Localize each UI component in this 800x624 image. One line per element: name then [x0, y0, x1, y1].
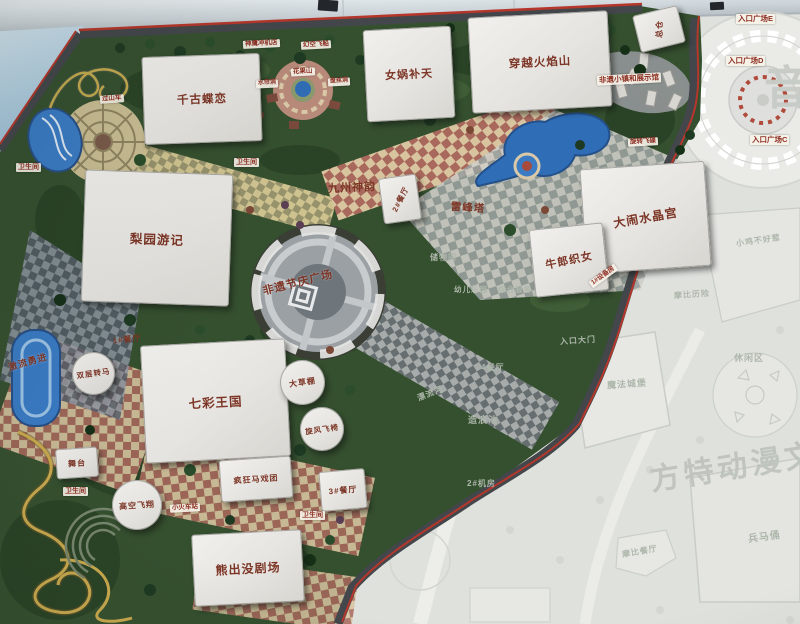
building-label: 七彩王国 — [140, 338, 291, 463]
building-leifengta: 雷峰塔 — [434, 178, 502, 237]
building-label: 雷峰塔 — [434, 178, 502, 237]
label-text: 盘丝洞 — [330, 78, 348, 85]
label-text: 储物间 — [430, 253, 457, 262]
label-text: 休闲区 — [734, 353, 764, 363]
building-qiangu-dielian: 千古蝶恋 — [142, 53, 263, 145]
label-text: 花果山 — [293, 67, 313, 75]
building-label: 旋风飞椅 — [297, 404, 347, 454]
label-text: 入口大门 — [560, 335, 597, 346]
label-canting-4: 4餐厅 — [481, 363, 504, 373]
label-text: 4餐厅 — [481, 363, 504, 372]
label-text: 卫生间 — [65, 488, 86, 495]
building-label: 女娲补天 — [363, 26, 456, 122]
label-zaolangchi: 造浪池 — [468, 415, 498, 427]
label-text: 水帘洞 — [258, 80, 276, 87]
building-label: 3#餐厅 — [318, 468, 367, 512]
label-wc-xiongchumo: 卫生间 — [300, 511, 325, 520]
label-text: 造浪池 — [468, 415, 498, 425]
building-label: 千古蝶恋 — [142, 53, 263, 145]
building-nvwa-butian: 女娲补天 — [363, 26, 456, 122]
label-shuiliandong: 水帘洞 — [256, 79, 278, 88]
label-wc-wutai: 卫生间 — [63, 487, 88, 496]
building-label: 熊出没剧场 — [191, 529, 305, 607]
label-pansidong: 盘丝洞 — [328, 77, 350, 86]
label-text: 2#机房 — [467, 479, 496, 488]
building-qicai-wangguo: 七彩王国 — [140, 338, 291, 463]
label-text: 卫生间 — [236, 159, 257, 166]
label-text: 魔法城堡 — [607, 378, 648, 391]
label-text: 摩比历险 — [674, 289, 711, 300]
building-canting-2: 2#餐厅 — [378, 174, 422, 225]
label-text: 小火车站 — [172, 503, 198, 511]
building-chuanyue-huoyanshan: 穿越火焰山 — [468, 10, 613, 113]
building-label: 双层转马 — [69, 349, 118, 398]
label-text: 幻空飞船 — [303, 40, 329, 48]
label-text: 卫生间 — [18, 164, 39, 171]
ride-shuangceng-zhuanma: 双层转马 — [72, 352, 115, 395]
building-label: 疯狂马戏团 — [219, 456, 294, 503]
label-rukou-guangchang-c: 入口广场C — [750, 135, 789, 145]
building-label: 总仓 — [640, 6, 679, 53]
building-label: 舞台 — [55, 447, 99, 480]
building-liyuan-youji: 梨园游记 — [81, 169, 234, 306]
label-text: 幼儿乐园 — [454, 285, 488, 294]
ride-gaokong-feixiang: 高空飞翔 — [112, 480, 162, 530]
building-label: 高空飞翔 — [110, 478, 163, 531]
ride-dacaopeng: 大草棚 — [280, 360, 325, 405]
watermark-corner-char: 音 — [764, 52, 800, 118]
label-chuwujian: 储物间 — [430, 253, 457, 263]
building-label: 梨园游记 — [81, 169, 234, 306]
label-rukou-guangchang-d: 入口广场D — [726, 56, 765, 66]
building-canting-3: 3#餐厅 — [318, 468, 367, 512]
label-text: 卫生间 — [302, 512, 323, 519]
label-wc-liyuan-west: 卫生间 — [16, 163, 41, 172]
label-text: 过山车 — [102, 94, 122, 102]
building-xiongchumo-juchang: 熊出没剧场 — [191, 529, 305, 607]
building-label: 牛郎织女 — [526, 219, 613, 301]
ride-xuanfeng-feiyi: 旋风飞椅 — [300, 407, 344, 451]
building-wutai: 舞台 — [55, 447, 99, 480]
label-jifang-2: 2#机房 — [467, 479, 496, 489]
label-text: 入口广场C — [752, 135, 787, 144]
label-text: 入口广场D — [728, 56, 763, 65]
building-label: 大草棚 — [277, 357, 328, 408]
park-map-photo: { "map": { "watermarks": { "main": "方特动漫… — [0, 0, 800, 624]
label-youer-leyuan: 幼儿乐园 — [454, 285, 488, 295]
label-rukou-guangchang-e: 入口广场E — [736, 14, 775, 24]
building-fengkuang-maxituan: 疯狂马戏团 — [219, 456, 294, 503]
building-niulang-zhinv: 牛郎织女 — [529, 222, 610, 297]
label-text: 旋转飞碟 — [630, 137, 656, 145]
label-xiuxianqu: 休闲区 — [734, 353, 764, 365]
label-text: 神鹰冲机店 — [245, 39, 278, 48]
label-wc-liyuan-east: 卫生间 — [234, 158, 259, 167]
label-zonghe-fuwu: 综合服务 — [498, 285, 532, 295]
label-text: 入口广场E — [738, 14, 773, 23]
building-label: 穿越火焰山 — [468, 10, 613, 113]
label-text: 综合服务 — [498, 285, 532, 294]
